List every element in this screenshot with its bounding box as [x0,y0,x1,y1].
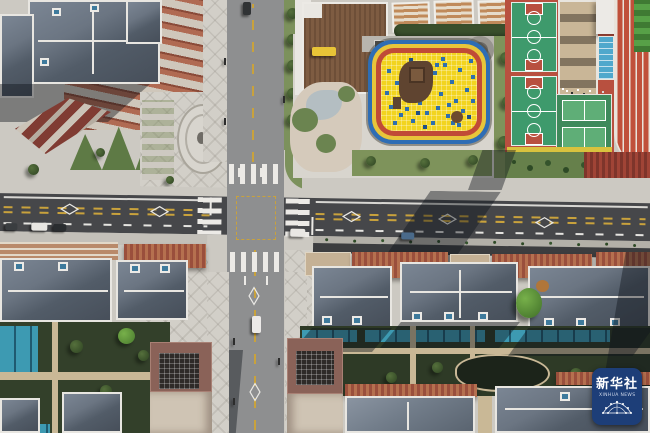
skylight-dormer [160,264,170,273]
free-throw-arc [527,123,541,137]
car-dark-parked [5,223,17,230]
streetlight [233,338,235,345]
tree [70,340,83,353]
skylight-dormer [322,316,332,325]
maroon-building [150,342,212,392]
play-structure-deck [409,67,425,83]
lane-arrow [266,276,268,285]
sidewalk-north-east [302,178,650,190]
skylight-dormer [560,392,570,401]
slate-roof-west-wing [0,14,34,98]
skylight-dormer [478,312,488,321]
streetlight [283,96,285,103]
maroon-building [287,338,343,394]
stepped-planters [142,100,174,180]
water-strip [495,330,610,342]
house-roof [62,392,122,433]
center-dashes-north [252,4,254,162]
free-throw-arc [527,85,541,99]
streetlight [233,398,235,405]
stop-line [311,217,313,235]
car-white-parked [31,223,47,231]
house-roof [0,398,40,433]
skylight-dormer [130,264,140,273]
skylight-dormer [90,4,99,12]
skylight-dormer [352,316,362,325]
blue-tiles [383,55,387,59]
car-dark-parked [53,224,66,231]
tree [96,148,105,157]
streetlight [278,358,280,365]
basketball-court-1 [511,2,557,72]
skylight-dormer [444,312,454,321]
center-circle [527,104,541,118]
car-blue [401,232,414,239]
roof-ridge [459,270,461,318]
courtyard-path [0,372,170,380]
roof-ridge [92,8,94,74]
tree [468,155,478,165]
tree [28,164,39,175]
aerial-photo: 新华社 XINHUA NEWS [0,0,650,433]
diamond-marking [249,382,260,401]
swimming-pool [598,36,614,80]
north-south-street [227,0,284,433]
lawn-circle [338,86,355,102]
skylight-dormer [52,8,61,16]
sidewalk-west-of-street [203,0,227,162]
lane-arrow [238,168,240,177]
roof-ridge [8,290,108,292]
center-circle [527,30,541,44]
basketball-court-2 [511,76,557,146]
tree [366,156,376,166]
maroon-building-roof-terrace [287,394,343,433]
tree [420,158,430,168]
skylight-dormer [40,58,49,66]
brown-circle [451,111,463,123]
shrub-row [512,160,516,164]
courtyard-path [52,322,58,433]
tree [386,372,397,383]
water-strip [0,326,38,372]
skylight-dormer [412,312,422,321]
volleyball-court [562,127,606,148]
streetlight [224,58,226,65]
diamond-marking [248,286,259,305]
tree [138,350,149,361]
playground-yellow-field [381,53,477,131]
volleyball-area [556,94,612,152]
slate-roof-annex [126,0,162,44]
roof-ridge [124,290,184,292]
lawn-circle [292,108,318,132]
volleyball-court [562,100,606,121]
house-roof [116,260,188,320]
net-line [584,128,585,147]
roof-ridge [407,402,409,430]
roof-terrace [304,4,322,18]
crosswalk-south [230,252,284,272]
tree [166,176,174,184]
playground-track [368,40,490,144]
lawn-circle [316,134,336,153]
water-strip [365,330,485,342]
xinhua-watermark-cn: 新华社 [596,378,638,392]
net-line [584,101,585,120]
free-throw-arc [527,11,541,25]
people-dots [562,88,564,90]
roof-ridge [410,291,512,293]
bright-tree [516,288,542,318]
skylight-grid [159,353,199,389]
skylight-grid [296,351,334,385]
car-white-southbound [252,316,261,333]
bleachers [584,152,650,180]
house-roof-bottom [345,396,475,433]
street-shadow [227,350,243,433]
skylight-dormer [58,262,68,271]
bright-tree [118,328,135,344]
junction-box [236,196,276,240]
xinhua-watermark-en: XINHUA NEWS [599,393,635,398]
globe-network-icon [600,399,634,415]
play-structure-step [393,97,401,109]
roof-ridge [538,296,644,298]
car-dark-north [243,2,251,15]
school-bus [312,47,336,56]
lane-arrow [244,276,246,285]
autumn-tree [536,280,549,292]
free-throw-arc [527,49,541,63]
car-white [290,229,305,237]
lane-arrow [260,168,262,177]
streetlight [224,118,226,125]
sports-field [634,0,650,52]
courtyard-path [478,396,492,433]
xinhua-watermark: 新华社 XINHUA NEWS [592,368,642,425]
crosswalk-west [197,197,222,234]
median-plants [325,238,328,241]
maroon-building-roof-terrace [150,392,212,433]
skylight-dormer [14,262,24,271]
tree [432,362,443,373]
roof-ridge [320,296,388,298]
courtyard-path [300,348,650,354]
center-dashes-south [254,250,256,430]
